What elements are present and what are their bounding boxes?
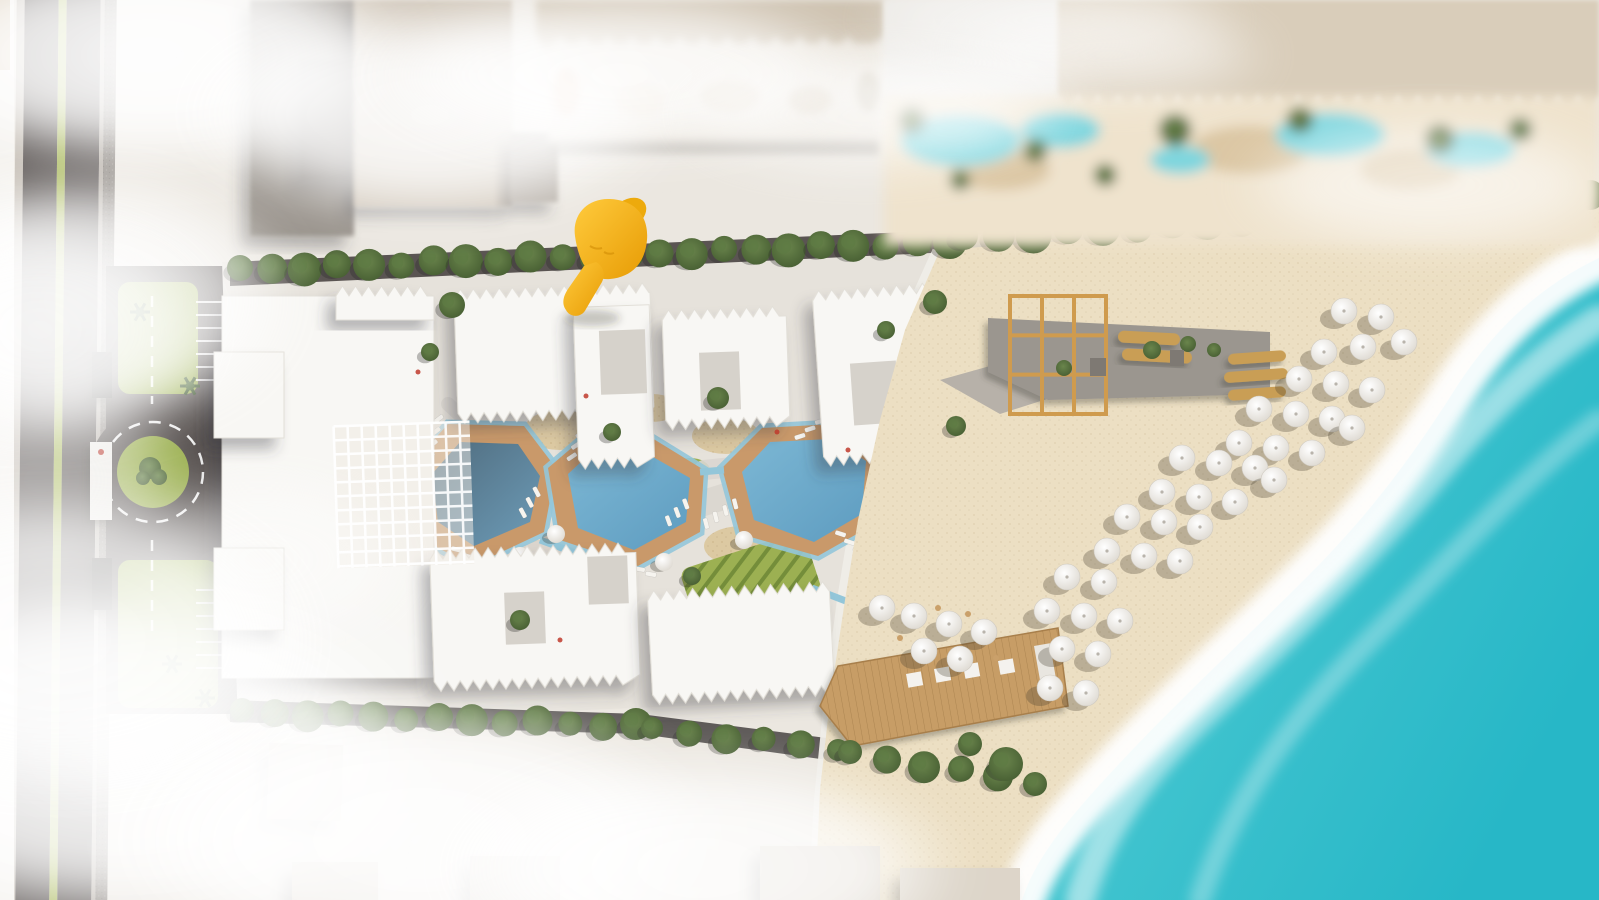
tree-highlight — [605, 426, 613, 434]
tree-highlight — [326, 254, 339, 267]
umbrella-pole-tip — [1197, 495, 1200, 498]
tree-highlight — [879, 324, 887, 332]
umbrella-pole-tip — [1297, 377, 1300, 380]
umbrella-pole-tip — [1065, 575, 1068, 578]
tree-highlight — [790, 735, 803, 748]
tree-highlight — [755, 730, 766, 741]
tree-highlight — [714, 240, 726, 252]
water-channel-2 — [700, 470, 724, 472]
umbrella-pole-tip — [1217, 461, 1220, 464]
tree-highlight — [392, 257, 404, 269]
umbrella-pole-tip — [1142, 554, 1145, 557]
umbrella-pole-tip — [1125, 515, 1128, 518]
umbrella-pole-tip — [947, 622, 950, 625]
umbrella-pole-tip — [1178, 559, 1181, 562]
umbrella-pole-tip — [1310, 451, 1313, 454]
umbrella-pole-tip — [1045, 609, 1048, 612]
umbrella-pole-tip — [1257, 407, 1260, 410]
tree-highlight — [453, 249, 468, 264]
tree-highlight — [423, 346, 431, 354]
bar-skylight — [998, 658, 1015, 674]
tree-highlight — [649, 244, 662, 257]
umbrella-pole-tip — [1272, 478, 1275, 481]
deck-umbrella — [655, 553, 673, 571]
neighbor-tree — [1287, 107, 1313, 133]
tree-highlight — [624, 713, 638, 727]
tree-highlight — [949, 419, 958, 428]
tree-highlight — [776, 238, 791, 253]
detail-accent-dot — [775, 430, 780, 435]
tree-highlight — [644, 720, 654, 730]
umbrella-pole-tip — [1370, 388, 1373, 391]
tree-highlight — [442, 296, 454, 308]
tree-highlight — [553, 248, 565, 260]
beach-table — [935, 605, 941, 611]
deck-planter-box — [1090, 358, 1106, 376]
neighbor-tree — [1094, 164, 1116, 186]
detail-accent-dot — [846, 448, 851, 453]
umbrella-pole-tip — [1105, 549, 1108, 552]
tree-highlight — [810, 235, 823, 248]
tree-highlight — [685, 570, 693, 578]
deck-planter-green — [1207, 343, 1221, 357]
umbrella-pole-tip — [1237, 441, 1240, 444]
tree-highlight — [422, 250, 436, 264]
tree-highlight — [926, 294, 937, 305]
umbrella-pole-tip — [880, 606, 883, 609]
umbrella-pole-tip — [1379, 315, 1382, 318]
tree-highlight — [745, 239, 759, 253]
tree-highlight — [951, 760, 963, 772]
deck-planter-box — [1170, 350, 1184, 366]
umbrella-pole-tip — [1330, 417, 1333, 420]
umbrella-pole-tip — [1082, 614, 1085, 617]
umbrella-pole-tip — [1118, 619, 1121, 622]
detail-accent-dot — [416, 370, 421, 375]
umbrella-pole-tip — [1402, 340, 1405, 343]
umbrella-pole-tip — [1162, 520, 1165, 523]
umbrella-pole-tip — [1233, 500, 1236, 503]
umbrella-pole-tip — [1274, 446, 1277, 449]
deck-planter-green — [1180, 336, 1196, 352]
detail-accent-dot — [558, 638, 563, 643]
umbrella-pole-tip — [1102, 580, 1105, 583]
resort-masterplan-render — [0, 0, 1599, 900]
tree-highlight — [877, 750, 890, 763]
umbrella-pole-tip — [1361, 345, 1364, 348]
umbrella-pole-tip — [1048, 686, 1051, 689]
neighbor-tree — [1159, 114, 1191, 146]
scene-stage — [0, 0, 1599, 900]
umbrella-pole-tip — [1180, 456, 1183, 459]
umbrella-pole-tip — [1342, 309, 1345, 312]
tree-highlight — [841, 744, 852, 755]
tree-highlight — [961, 736, 972, 747]
deck-planter-green — [1143, 341, 1161, 359]
umbrella-pole-tip — [1198, 525, 1201, 528]
umbrella-pole-tip — [982, 630, 985, 633]
tree-highlight — [513, 613, 522, 622]
umbrella-pole-tip — [1334, 382, 1337, 385]
tree-highlight — [912, 756, 926, 770]
umbrella-pole-tip — [1322, 350, 1325, 353]
tree-highlight — [518, 245, 532, 259]
tree-highlight — [679, 725, 691, 737]
umbrella-pole-tip — [912, 614, 915, 617]
tree-highlight — [715, 729, 729, 743]
building-south-2 — [647, 581, 835, 704]
tree-highlight — [993, 752, 1008, 767]
tree-highlight — [488, 252, 501, 265]
detail-accent-dot — [584, 394, 589, 399]
umbrella-pole-tip — [1160, 490, 1163, 493]
umbrella-pole-tip — [922, 649, 925, 652]
roof-courtyard-0 — [599, 329, 647, 395]
deck-umbrella — [547, 525, 565, 543]
umbrella-pole-tip — [1253, 466, 1256, 469]
umbrella-pole-tip — [1294, 412, 1297, 415]
tree-highlight — [680, 243, 694, 257]
deck-umbrella — [735, 531, 753, 549]
beach-table — [993, 655, 999, 661]
deck-planter-green — [1056, 360, 1072, 376]
roof-courtyard-4 — [587, 555, 629, 604]
beach-table — [965, 611, 971, 617]
umbrella-pole-tip — [958, 657, 961, 660]
umbrella-pole-tip — [1060, 647, 1063, 650]
beach-table — [897, 635, 903, 641]
umbrella-pole-tip — [1350, 426, 1353, 429]
tree-highlight — [710, 390, 720, 400]
tree-highlight — [1026, 776, 1037, 787]
umbrella-pole-tip — [1096, 652, 1099, 655]
tree-highlight — [357, 254, 371, 268]
bar-skylight — [906, 671, 923, 687]
umbrella-pole-tip — [1084, 691, 1087, 694]
neighbor-pool-blob — [1150, 146, 1210, 174]
tree-highlight — [841, 235, 855, 249]
